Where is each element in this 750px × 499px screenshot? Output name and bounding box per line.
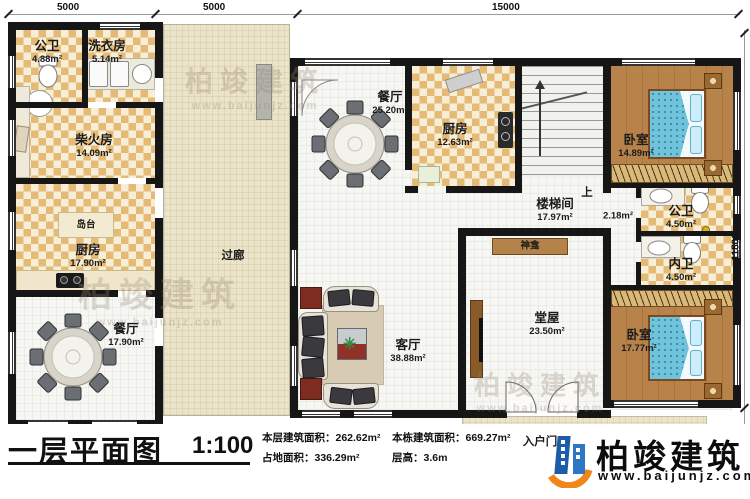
room-label-bath2: 公卫4.50m² xyxy=(666,204,696,230)
window xyxy=(354,410,392,418)
sofa-cushion xyxy=(351,289,374,307)
room-label-bedroom1: 卧室14.89m² xyxy=(618,133,653,159)
window xyxy=(302,410,340,418)
dim-top-3: 15000 xyxy=(492,2,520,13)
stat-floor-area: 本层建筑面积：262.62m² xyxy=(262,430,380,445)
wall xyxy=(603,232,611,408)
floor-mat xyxy=(418,166,440,183)
wall xyxy=(8,102,86,108)
room-label-bedroom2: 卧室17.77m² xyxy=(621,328,656,354)
wall xyxy=(146,178,163,184)
sofa-cushion xyxy=(352,387,376,405)
pillow xyxy=(690,126,702,154)
wall xyxy=(8,178,118,184)
sink-icon xyxy=(646,240,672,256)
company-logo-website: www.baijunjz.com xyxy=(598,468,750,483)
wall xyxy=(458,228,611,236)
wall xyxy=(636,188,641,198)
wall xyxy=(462,410,507,418)
sofa-cushion xyxy=(301,357,325,379)
stat-land-area: 占地面积：336.29m² xyxy=(262,450,359,465)
window xyxy=(733,92,741,150)
room-label-tangwu: 堂屋23.50m² xyxy=(529,311,564,337)
stat-total-area: 本栋建筑面积：669.27m² xyxy=(392,430,510,445)
burner-icon xyxy=(60,276,68,284)
wall xyxy=(636,218,641,242)
wall xyxy=(611,285,741,290)
window xyxy=(290,82,298,116)
kitchen-counter xyxy=(16,270,155,291)
dim-top-1: 5000 xyxy=(57,2,79,13)
wall xyxy=(611,183,741,188)
room-label-stairwell: 楼梯间17.97m² xyxy=(536,197,574,223)
dim-top-2: 5000 xyxy=(203,2,225,13)
pillow xyxy=(690,350,702,376)
room-label-laundry: 洗衣房5.14m² xyxy=(88,39,126,65)
wall xyxy=(641,231,741,236)
wall xyxy=(603,66,611,193)
room-label-kitchen-main: 厨房12.63m² xyxy=(437,122,472,148)
wall xyxy=(515,66,522,193)
label-hall-area: 2.18m² xyxy=(603,210,633,221)
dimension-tick xyxy=(734,9,743,18)
wall xyxy=(155,346,163,420)
wall xyxy=(405,66,412,170)
sink-icon xyxy=(648,188,674,204)
stairs-up-arrow xyxy=(539,88,541,156)
window xyxy=(8,120,16,156)
wall xyxy=(405,186,418,193)
window xyxy=(733,196,741,214)
wall xyxy=(146,290,163,297)
window xyxy=(305,58,390,66)
sofa-cushion xyxy=(301,336,325,358)
window xyxy=(614,400,698,408)
label-stairs-up: 上 xyxy=(581,187,593,201)
room-label-dining-main: 餐厅25.20m² xyxy=(372,90,407,116)
floor-plan-sheet: 5000 5000 15000 11800 2000 xyxy=(0,0,750,499)
end-table xyxy=(300,287,322,309)
laundry-sink-icon xyxy=(132,64,152,84)
room-label-firewood: 柴火房14.09m² xyxy=(75,133,113,159)
entry-door-swing-icon xyxy=(503,374,581,414)
wall xyxy=(8,290,118,297)
nightstand xyxy=(704,383,722,399)
burner-icon xyxy=(73,276,81,284)
wall xyxy=(155,104,163,188)
window xyxy=(8,212,16,250)
wall xyxy=(458,228,466,418)
pillow xyxy=(690,94,702,122)
end-table xyxy=(300,378,322,400)
window xyxy=(8,332,16,374)
tv-icon xyxy=(479,318,483,362)
sofa-cushion xyxy=(327,289,351,307)
room-label-dining-left: 餐厅17.90m² xyxy=(108,322,143,348)
dining-table-icon xyxy=(27,311,119,403)
label-shrine: 神龛 xyxy=(520,240,539,251)
sofa-cushion xyxy=(301,315,324,336)
nightstand xyxy=(704,299,722,315)
cabinet xyxy=(256,64,272,120)
dimension-line-right xyxy=(744,30,745,470)
room-label-kitchen-left: 厨房17.90m² xyxy=(70,243,105,269)
nightstand xyxy=(704,73,722,89)
dim-right-height: 11800 xyxy=(731,221,742,261)
title-underline xyxy=(8,462,250,465)
plant-icon: ✳ xyxy=(343,334,363,354)
window xyxy=(8,56,16,88)
window xyxy=(290,250,298,286)
room-label-living: 客厅38.88m² xyxy=(390,338,425,364)
wall xyxy=(116,102,163,108)
sheet-scale: 1:100 xyxy=(192,432,253,460)
window xyxy=(443,58,493,66)
window xyxy=(622,58,695,66)
label-island: 岛台 xyxy=(76,219,95,230)
window xyxy=(100,22,140,30)
window xyxy=(290,346,298,386)
nightstand xyxy=(704,160,722,176)
wall xyxy=(577,410,611,418)
wall xyxy=(155,22,163,78)
pillow xyxy=(690,320,702,346)
stat-storey-height: 层高：3.6m xyxy=(392,450,447,465)
room-label-corridor: 过廊 xyxy=(222,250,245,264)
door-swing-icon xyxy=(300,78,340,118)
room-label-bath3: 内卫4.50m² xyxy=(666,257,696,283)
stairs-arrow-head xyxy=(535,80,545,89)
wall xyxy=(155,218,163,318)
window xyxy=(733,325,741,385)
wall xyxy=(636,262,641,285)
burner-icon xyxy=(501,132,510,141)
company-logo-icon xyxy=(545,432,595,488)
wall xyxy=(82,22,88,108)
room-label-bath1: 公卫4.88m² xyxy=(32,39,62,65)
wall xyxy=(446,186,522,193)
sofa-cushion xyxy=(329,387,353,406)
dimension-line-top xyxy=(8,14,740,15)
burner-icon xyxy=(501,117,510,126)
